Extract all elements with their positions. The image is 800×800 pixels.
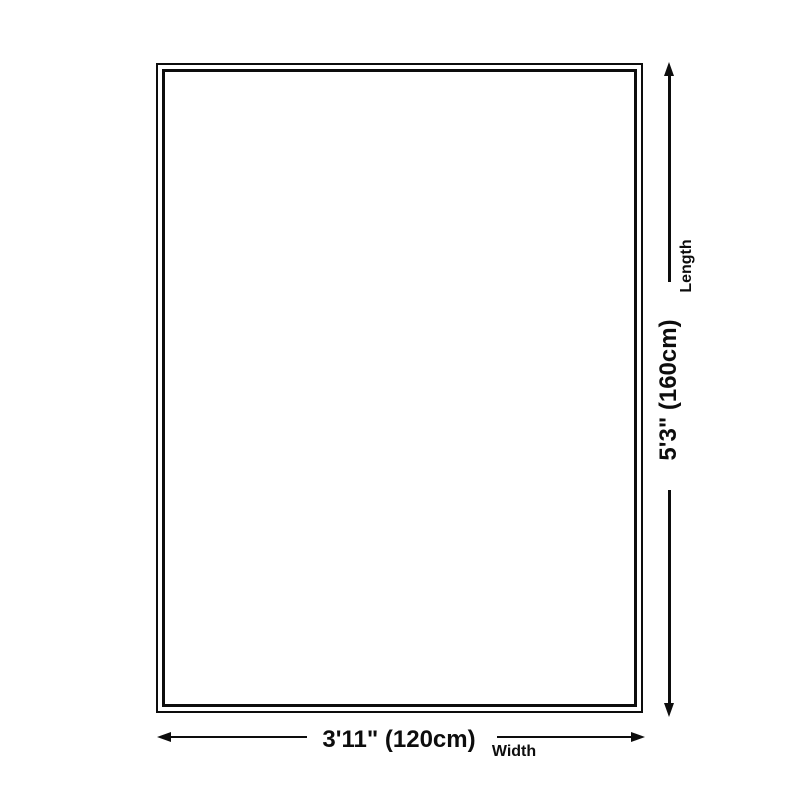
arrow-left-icon bbox=[157, 732, 171, 742]
dimension-diagram: Length 5'3" (160cm) 3'11" (120cm) Width bbox=[0, 0, 800, 800]
arrow-down-icon bbox=[664, 703, 674, 717]
width-value: 3'11" (120cm) bbox=[322, 728, 475, 752]
length-value: 5'3" (160cm) bbox=[657, 319, 681, 460]
width-line-right bbox=[497, 736, 632, 739]
product-outline-outer bbox=[156, 63, 643, 713]
arrow-right-icon bbox=[631, 732, 645, 742]
width-line-left bbox=[170, 736, 307, 739]
length-line-top bbox=[668, 74, 671, 282]
product-outline-inner bbox=[162, 69, 637, 707]
length-label: Length bbox=[679, 239, 695, 292]
width-label: Width bbox=[492, 744, 536, 760]
length-line-bottom bbox=[668, 490, 671, 703]
